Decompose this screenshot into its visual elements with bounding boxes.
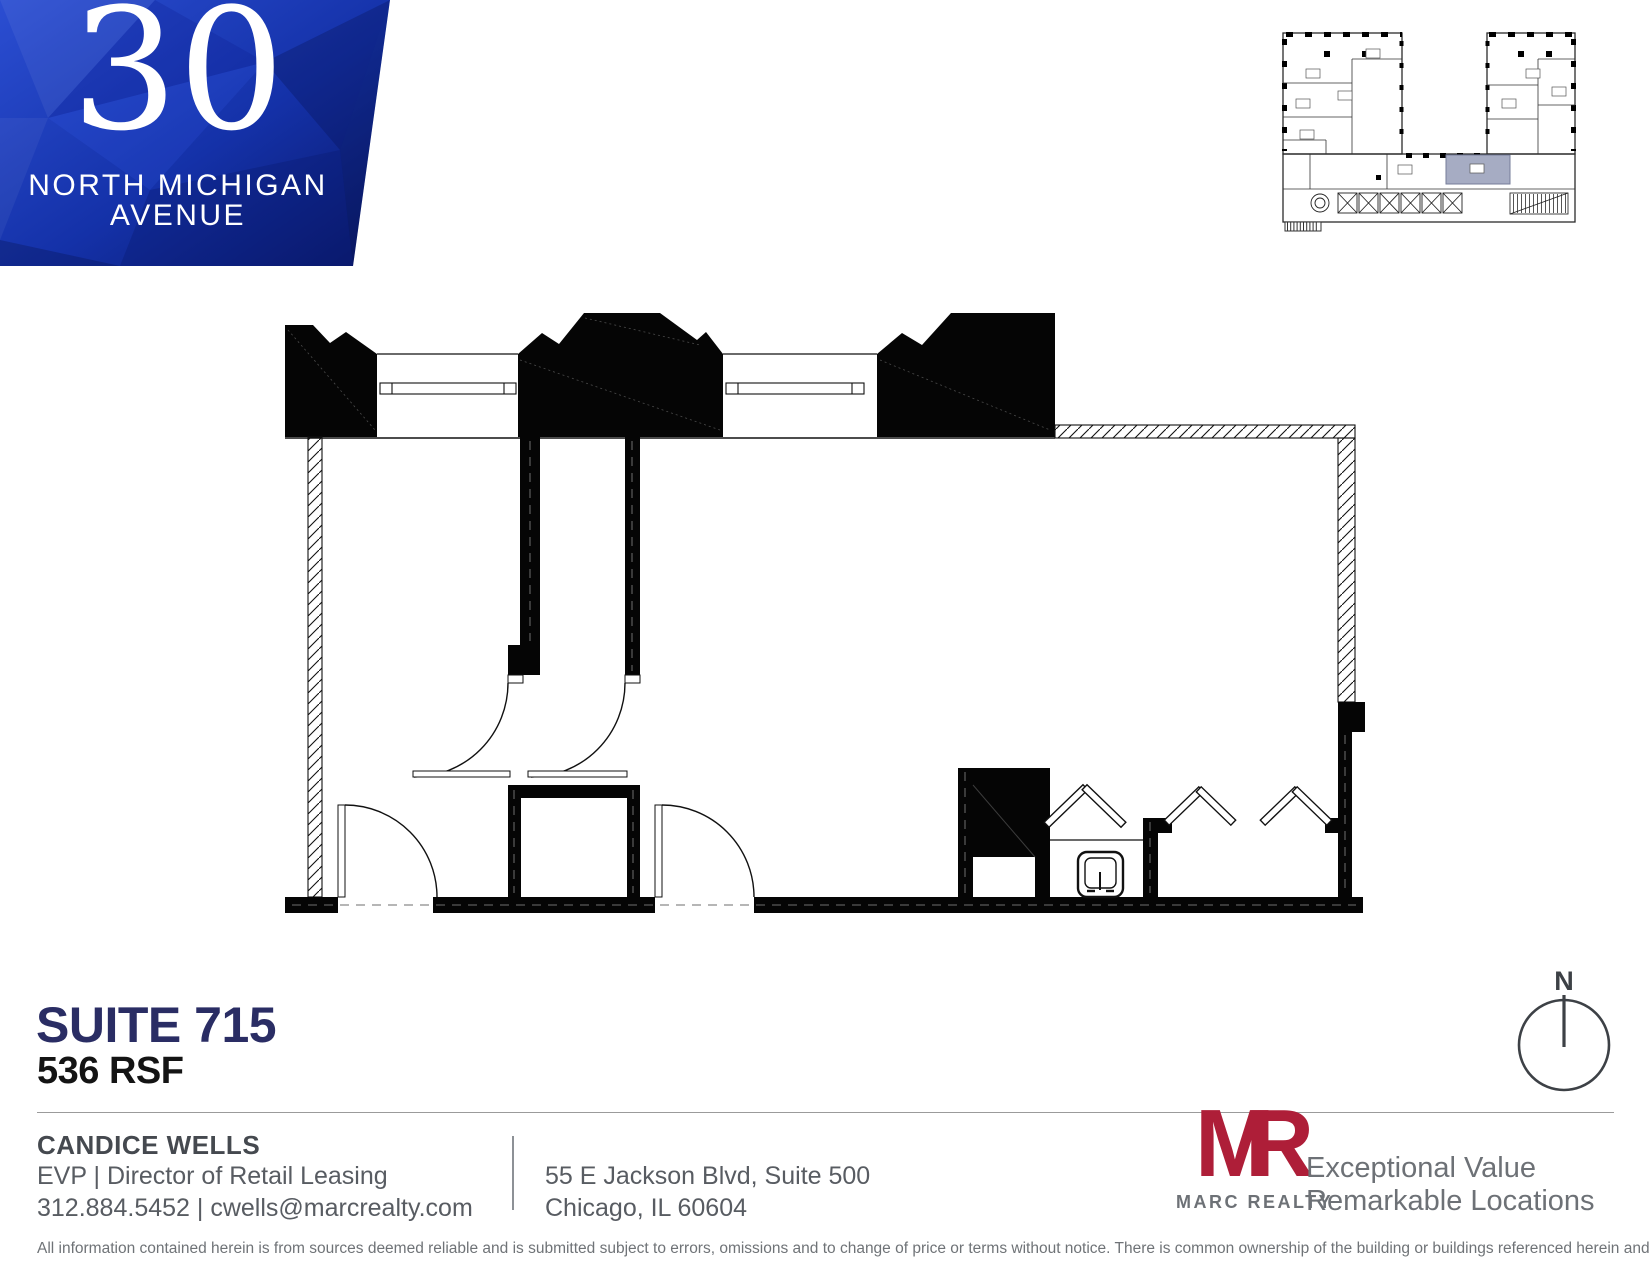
building-banner: 30 NORTH MICHIGAN AVENUE bbox=[0, 0, 390, 266]
key-plan-columns bbox=[1324, 51, 1552, 180]
closet-bifold-doors bbox=[1044, 785, 1332, 828]
contact-name: CANDICE WELLS bbox=[37, 1130, 260, 1161]
address-line1: 55 E Jackson Blvd, Suite 500 bbox=[545, 1162, 870, 1191]
brand-tagline-line1: Exceptional Value bbox=[1306, 1152, 1536, 1185]
interior-room-walls bbox=[508, 785, 640, 897]
compass-north-label: N bbox=[1554, 966, 1574, 996]
key-plan-elevators bbox=[1311, 193, 1462, 213]
north-compass-icon: N bbox=[1495, 950, 1645, 1095]
hatched-demising-walls bbox=[308, 425, 1355, 897]
building-name-line1: NORTH MICHIGAN bbox=[0, 169, 356, 203]
shaft-closet bbox=[958, 768, 1050, 898]
brand-tagline-line2: Remarkable Locations bbox=[1306, 1185, 1595, 1218]
building-name-line2: AVENUE bbox=[0, 199, 356, 233]
key-plan-room-labels bbox=[1296, 49, 1566, 174]
building-number: 30 bbox=[0, 0, 356, 158]
sink-wall-stub bbox=[1143, 818, 1172, 898]
key-plan-entry bbox=[1285, 222, 1321, 231]
disclaimer-text: All information contained herein is from… bbox=[37, 1240, 1650, 1258]
exterior-wall-piers bbox=[285, 313, 1055, 437]
sink-icon bbox=[1050, 840, 1143, 897]
interior-walls bbox=[508, 437, 640, 683]
contact-phone-email: 312.884.5452 | cwells@marcrealty.com bbox=[37, 1194, 473, 1223]
footer-vertical-divider bbox=[512, 1136, 514, 1210]
floor-plan bbox=[260, 280, 1380, 940]
key-plan bbox=[1280, 25, 1580, 237]
suite-area: 536 RSF bbox=[37, 1050, 183, 1093]
footer-divider bbox=[37, 1112, 1614, 1113]
address-line2: Chicago, IL 60604 bbox=[545, 1194, 747, 1223]
wall-centerlines bbox=[292, 441, 1356, 905]
key-plan-stairs bbox=[1510, 193, 1568, 214]
contact-title: EVP | Director of Retail Leasing bbox=[37, 1162, 388, 1191]
suite-title: SUITE 715 bbox=[36, 996, 276, 1054]
key-plan-partitions bbox=[1283, 59, 1575, 189]
